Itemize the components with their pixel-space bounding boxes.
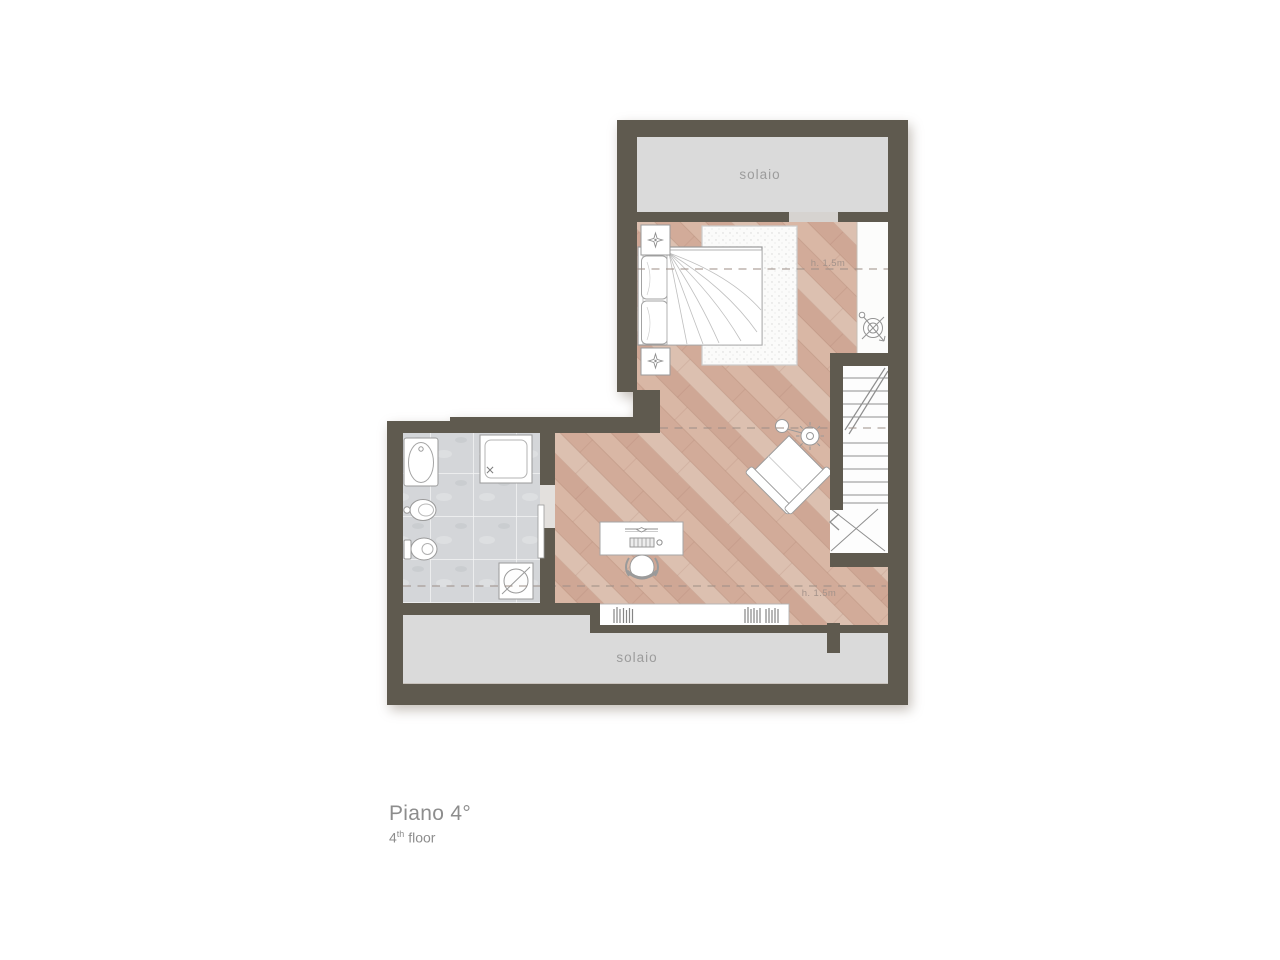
- wall-under-solaio-left: [637, 212, 789, 222]
- wall-under-bathroom: [387, 603, 600, 615]
- wall-under-bookshelf: [590, 625, 888, 633]
- height-label-lower: h. 1.5m: [802, 588, 836, 599]
- nightstand-top: [641, 225, 670, 255]
- light-knob: [859, 312, 865, 318]
- shower-tray: [480, 435, 532, 483]
- floor-word: floor: [404, 830, 435, 846]
- wall-left-upper: [617, 120, 637, 392]
- bathtub: [404, 438, 438, 486]
- nightstand-star-dot: [654, 239, 656, 241]
- wall-under-solaio-right: [838, 212, 888, 222]
- toilet-tank: [404, 540, 411, 559]
- wall-left-lower: [387, 421, 403, 705]
- wall-stub-bottom-right: [827, 623, 840, 653]
- wall-corner-jog: [633, 390, 660, 419]
- nightstand-bottom: [641, 348, 670, 375]
- floor-plan-drawing: solaio solaio h. 1.5m h. 1.5m: [0, 0, 1280, 960]
- nightstand-star-dot: [654, 360, 656, 362]
- floor-number: 4: [389, 830, 397, 846]
- floor-title: Piano 4°: [389, 802, 471, 826]
- bed: [638, 247, 762, 345]
- solaio-bottom-label: solaio: [616, 650, 657, 665]
- desk: [600, 522, 683, 555]
- bookshelf: [597, 604, 789, 627]
- wall-stair-left: [830, 353, 843, 510]
- floor-subtitle: 4th floor: [389, 829, 471, 846]
- bathtub-basin: [409, 443, 434, 483]
- floor-caption: Piano 4° 4th floor: [389, 802, 471, 846]
- bed-pillow-bottom: [642, 301, 668, 344]
- bidet-tap: [404, 507, 410, 513]
- bed-duvet: [667, 250, 762, 345]
- bidet-bowl: [410, 500, 436, 521]
- desk-mouse: [657, 540, 662, 545]
- books-group-left: [614, 607, 633, 623]
- washing-machine: [499, 563, 533, 599]
- solaio-top-label: solaio: [739, 167, 780, 182]
- wall-stair-bottom: [830, 553, 888, 567]
- wall-bottom: [387, 684, 908, 705]
- sliding-door-leaf: [538, 505, 544, 558]
- solaio-bottom-left-area: [403, 615, 590, 683]
- shower: [480, 435, 532, 483]
- wall-bathroom-right-upper: [540, 433, 555, 485]
- toilet: [404, 538, 437, 560]
- floor-plan-body: solaio solaio h. 1.5m h. 1.5m: [387, 120, 908, 705]
- lamp-bulb: [807, 433, 814, 440]
- lamp-base: [776, 420, 789, 433]
- wall-top: [617, 120, 908, 137]
- wall-right: [888, 120, 908, 705]
- floor-plan-page: solaio solaio h. 1.5m h. 1.5m Piano 4° 4…: [0, 0, 1280, 960]
- solaio-opening-threshold: [789, 212, 838, 222]
- wall-bathroom-top: [450, 417, 660, 433]
- bed-pillow-top: [642, 256, 668, 299]
- height-label-upper: h. 1.5m: [811, 258, 845, 269]
